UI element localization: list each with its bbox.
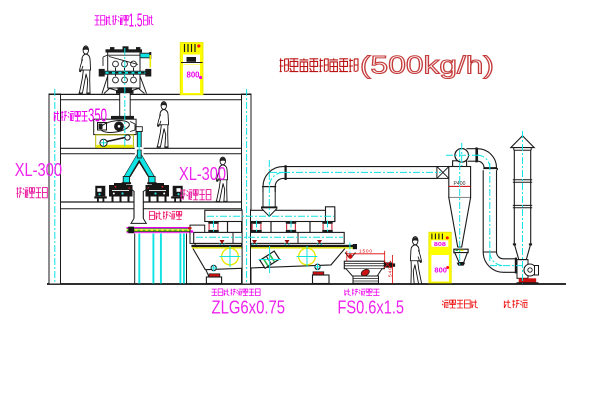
svg-text:FS0.6x1.5: FS0.6x1.5 — [338, 297, 405, 318]
svg-text:350: 350 — [88, 106, 107, 126]
svg-text:1.5: 1.5 — [129, 10, 143, 31]
svg-text:1500: 1500 — [359, 249, 372, 255]
svg-text:XL-300: XL-300 — [179, 163, 226, 184]
svg-text:XL-300: XL-300 — [15, 159, 62, 180]
svg-text:(500kg/h): (500kg/h) — [360, 52, 494, 80]
svg-text:540: 540 — [388, 267, 394, 277]
svg-text:800: 800 — [434, 266, 447, 275]
svg-text:808: 808 — [434, 242, 446, 248]
svg-text:ZLG6x0.75: ZLG6x0.75 — [212, 297, 286, 318]
svg-text:800: 800 — [187, 71, 201, 80]
